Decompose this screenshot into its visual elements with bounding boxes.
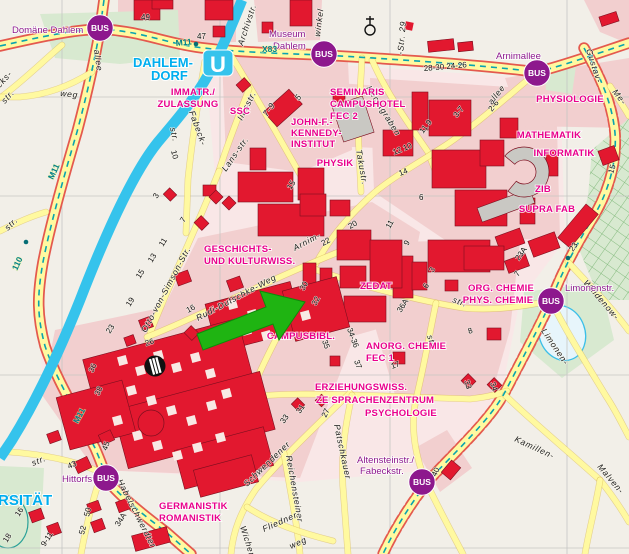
building <box>458 41 474 52</box>
round-building <box>138 410 164 436</box>
poi-label: KENNEDY- <box>291 128 342 139</box>
building <box>432 150 486 188</box>
bus-stop-badge: BUS <box>528 68 546 78</box>
poi-label: INFORMATIK <box>534 148 595 159</box>
bus-stop-badge: BUS <box>97 473 115 483</box>
bus-point-dot <box>566 256 571 261</box>
building <box>337 230 371 260</box>
poi-label: ZEDAT <box>360 281 392 292</box>
house-number: 49 <box>141 13 150 22</box>
building <box>152 0 173 9</box>
bus-stop-badge: BUS <box>91 23 109 33</box>
poi-label: PHYSIK <box>317 158 354 169</box>
poi-label: UND KULTURWISS. <box>204 256 295 267</box>
house-number: 47 <box>197 32 206 41</box>
poi-label: IMMATR./ <box>171 87 215 98</box>
bus-point-dot <box>24 240 29 245</box>
poi-label: ZULASSUNG <box>158 99 219 110</box>
building <box>445 280 458 291</box>
poi-label: ROMANISTIK <box>159 513 221 524</box>
house-number: 6 <box>419 193 424 202</box>
building <box>427 39 454 53</box>
stop-name-label: Museum <box>269 29 306 40</box>
map-canvas[interactable]: Archivstr.winkel-Str. 29HechtgrabenTakus… <box>0 0 629 554</box>
building <box>330 200 350 216</box>
poi-label: PHYS. CHEMIE <box>463 295 534 306</box>
building <box>330 356 340 366</box>
ubahn-station-icon: U <box>210 52 226 77</box>
poi-label: PSYCHOLOGIE <box>365 408 437 419</box>
bus-stop-badge: BUS <box>542 296 560 306</box>
campus-map[interactable]: Archivstr.winkel-Str. 29HechtgrabenTakus… <box>0 0 629 554</box>
bus-stop-badge: BUS <box>413 477 431 487</box>
building <box>487 328 501 340</box>
station-name-label: DORF <box>151 68 188 83</box>
bus-point-dot <box>194 42 199 47</box>
poi-label: SSC <box>230 106 250 117</box>
stop-name-label: Fabeckstr. <box>360 466 404 477</box>
poi-label: GESCHICHTS- <box>204 244 272 255</box>
poi-label: FEC 2 <box>330 111 358 122</box>
poi-label: GERMANISTIK <box>159 501 228 512</box>
transit-route-label: X83 <box>262 44 277 54</box>
building <box>344 296 386 322</box>
poi-label: SUPRA FAB <box>519 204 575 215</box>
building <box>300 194 326 216</box>
building <box>213 26 225 37</box>
poi-label: ZE SPRACHENZENTRUM <box>316 395 434 406</box>
poi-label: MATHEMATIK <box>517 130 581 141</box>
stop-name-label: Limonenstr. <box>565 283 614 294</box>
poi-label: ANORG. CHEMIE <box>366 341 446 352</box>
poi-label: INSTITUT <box>291 139 335 150</box>
building <box>500 118 518 138</box>
building <box>250 148 266 170</box>
building <box>290 0 312 26</box>
poi-label: JOHN-F.- <box>291 117 333 128</box>
bus-stop-badge: BUS <box>315 49 333 59</box>
poi-label: SEMINARIS <box>330 87 385 98</box>
building <box>480 140 504 166</box>
poi-label: ZIB <box>535 184 551 195</box>
poi-label: ORG. CHEMIE <box>468 283 534 294</box>
poi-label: PHYSIOLOGIE <box>536 94 604 105</box>
poi-label: FEC 1 <box>366 353 394 364</box>
poi-label: CAMPUSHOTEL <box>330 99 406 110</box>
building <box>464 246 504 270</box>
stop-name-label: Dahlem <box>273 41 306 52</box>
poi-label: ERZIEHUNGSWISS. <box>315 382 407 393</box>
stop-name-label: Domäne Dahlem <box>12 25 83 36</box>
building <box>429 100 471 136</box>
station-name-label: RSITÄT <box>0 492 52 509</box>
street-label: weg <box>60 88 79 100</box>
building <box>205 0 233 20</box>
stop-name-label: Altensteinstr./ <box>357 455 414 466</box>
transit-route-label: M11 <box>175 36 192 48</box>
